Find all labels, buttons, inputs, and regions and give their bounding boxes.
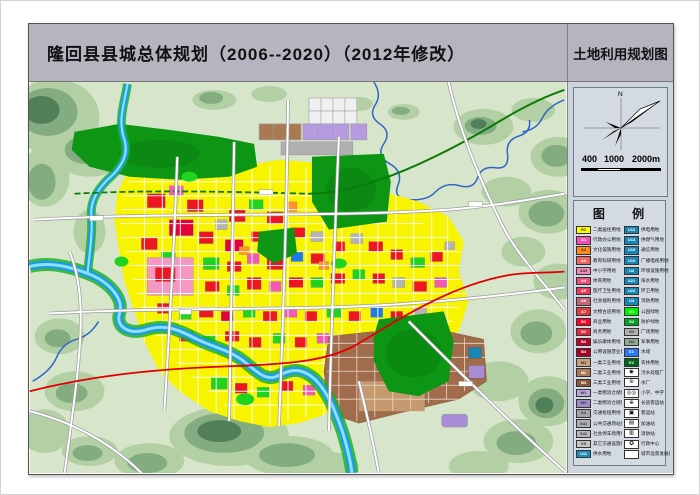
- legend-label: 体育用地: [593, 278, 611, 284]
- legend-label: 行政中心: [641, 441, 659, 447]
- school-icon: ◎◎: [624, 389, 639, 398]
- legend-item: G3广场用地: [624, 327, 670, 337]
- legend-label: 一类物流仓储用地: [593, 390, 622, 396]
- legend-item: B3娱乐康体用地: [576, 337, 622, 347]
- map-sheet-frame: 隆回县县城总体规划（2006--2020）（2012年修改） 土地利用规划图: [28, 23, 674, 475]
- legend-swatch: G1: [624, 307, 639, 316]
- legend-swatch: E1: [624, 348, 639, 357]
- legend-label: 供水用地: [593, 451, 611, 457]
- legend-item: R2二类居住用地: [576, 225, 622, 235]
- legend-label: 客运站: [641, 410, 655, 416]
- legend-item: M3三类工业用地: [576, 378, 622, 388]
- legend-label: 一类工业用地: [593, 360, 621, 366]
- passenger-station-icon: ▣: [624, 409, 639, 418]
- legend-label: 公用设施营业网点用地: [593, 349, 622, 355]
- legend-label: 三类工业用地: [593, 380, 621, 386]
- legend-swatch: B4: [576, 348, 591, 357]
- legend-item: M2二类工业用地: [576, 368, 622, 378]
- legend-label: 其它交通设施用地: [593, 441, 622, 447]
- legend-label: 污水处理厂: [641, 370, 664, 376]
- legend-swatch: W1: [576, 389, 591, 398]
- gas-station-icon: ▤: [624, 419, 639, 428]
- legend-label: 公园绿地: [641, 309, 659, 315]
- legend-label: 环境设施用地: [641, 268, 669, 274]
- legend-swatch: S41: [576, 419, 591, 428]
- scale-label-2000m: 2000m: [632, 154, 660, 164]
- legend-swatch: M3: [576, 379, 591, 388]
- legend-label: 社会停车场用地: [593, 431, 622, 437]
- legend-swatch: E2: [624, 358, 639, 367]
- title-bar: 隆回县县城总体规划（2006--2020）（2012年修改） 土地利用规划图: [29, 24, 673, 82]
- legend-item: M1一类工业用地: [576, 357, 622, 367]
- scanned-plan-page: 隆回县县城总体规划（2006--2020）（2012年修改） 土地利用规划图: [0, 0, 700, 495]
- scale-segment-2: [597, 168, 621, 171]
- legend-item: ⊛水厂: [624, 378, 670, 388]
- legend-label: 广播电视用地: [641, 258, 669, 264]
- legend-item: H4军事用地: [624, 337, 670, 347]
- legend-swatch: A3: [576, 256, 591, 265]
- legend-label: 文物古迹用地: [593, 309, 621, 315]
- legend-label: 消防用地: [641, 298, 659, 304]
- legend-item: E2农林用地: [624, 357, 670, 367]
- legend-label: 军事用地: [641, 339, 659, 345]
- legend-item: G2防护绿地: [624, 317, 670, 327]
- legend-label: 环卫用地: [641, 288, 659, 294]
- legend-item: U16广播电视用地: [624, 256, 670, 266]
- scale-bar: 400 1000 2000m: [574, 154, 667, 194]
- legend-label: 供电用地: [641, 227, 659, 233]
- legend-swatch: U11: [576, 450, 591, 459]
- legend-item: A6社会福利用地: [576, 296, 622, 306]
- legend-swatch: M2: [576, 368, 591, 377]
- legend-item: A3教育科研用地: [576, 256, 622, 266]
- legend-swatch-blank: [624, 450, 639, 459]
- legend-swatch: G3: [624, 328, 639, 337]
- legend-label: 娱乐康体用地: [593, 339, 621, 345]
- compass-scale-box: N 400 1000 2000m: [573, 87, 668, 197]
- legend-label: 文化设施用地: [593, 247, 621, 253]
- legend-item: U21排水用地: [624, 276, 670, 286]
- legend-item: ◉污水处理厂: [624, 368, 670, 378]
- legend-item: B2商务用地: [576, 327, 622, 337]
- legend-label: 消防站: [641, 431, 655, 437]
- legend-label: 农林用地: [641, 360, 659, 366]
- legend-item: A5医疗卫生用地: [576, 286, 622, 296]
- legend-item: A7文物古迹用地: [576, 307, 622, 317]
- legend-label: 商业用地: [593, 319, 611, 325]
- legend-swatch: U12: [624, 226, 639, 235]
- legend-swatch: A1: [576, 236, 591, 245]
- legend-label: 供燃气用地: [641, 237, 664, 243]
- map-canvas: [29, 82, 567, 473]
- legend-item: U12供电用地: [624, 225, 670, 235]
- scale-segment-1: [581, 168, 597, 171]
- legend-swatch: R2: [576, 226, 591, 235]
- sewage-plant-icon: ◉: [624, 368, 639, 377]
- map-type-title: 土地利用规划图: [568, 43, 673, 63]
- legend-item: U13供燃气用地: [624, 235, 670, 245]
- legend-item: ✪行政中心: [624, 439, 670, 449]
- legend-label: 通信用地: [641, 247, 659, 253]
- legend-item: S9其它交通设施用地: [576, 439, 622, 449]
- legend-item: B1商业用地: [576, 317, 622, 327]
- legend-swatch: W2: [576, 399, 591, 408]
- legend-title: 图 例: [586, 205, 663, 222]
- legend-label: 长途客运站: [641, 400, 664, 406]
- legend-label: 二类居住用地: [593, 227, 621, 233]
- scale-label-1000: 1000: [604, 154, 624, 164]
- legend-swatch: G2: [624, 318, 639, 327]
- legend-swatch: U13: [624, 236, 639, 245]
- legend-label: 二类物流仓储用地: [593, 400, 622, 406]
- legend-swatch: U22: [624, 287, 639, 296]
- legend-swatch: B1: [576, 318, 591, 327]
- legend-item: ⊕长途客运站: [624, 398, 670, 408]
- scale-segment-3: [621, 168, 661, 171]
- legend-item: ▤加油站: [624, 419, 670, 429]
- legend-item: U15通信用地: [624, 245, 670, 255]
- admin-center-icon: ✪: [624, 440, 639, 449]
- legend-label: 教育科研用地: [593, 258, 621, 264]
- legend-item: S41公共交通场站用地: [576, 419, 622, 429]
- main-title: 隆回县县城总体规划（2006--2020）（2012年修改）: [29, 40, 567, 65]
- coach-station-icon: ⊕: [624, 399, 639, 408]
- legend-swatch: A4: [576, 277, 591, 286]
- legend-item: G1公园绿地: [624, 307, 670, 317]
- legend-swatch: U2: [624, 267, 639, 276]
- water-plant-icon: ⊛: [624, 378, 639, 387]
- legend-label: 交通枢纽用地: [593, 410, 621, 416]
- map-sidebar: N 400 1000 2000m: [567, 82, 673, 473]
- legend-label: 中小学用地: [593, 268, 616, 274]
- legend-column-left: R2二类居住用地A1行政办公用地A2文化设施用地A3教育科研用地A33中小学用地…: [576, 225, 622, 459]
- legend-swatch: U3: [624, 297, 639, 306]
- land-use-map: [29, 82, 567, 473]
- legend-item: B4公用设施营业网点用地: [576, 347, 622, 357]
- scale-labels: 400 1000 2000m: [574, 154, 667, 167]
- compass-north-label: N: [618, 91, 623, 98]
- legend-label: 行政办公用地: [593, 237, 621, 243]
- legend-label: 加油站: [641, 421, 655, 427]
- legend-item: U11供水用地: [576, 449, 622, 459]
- legend-label: 排水用地: [641, 278, 659, 284]
- legend-item: W1一类物流仓储用地: [576, 388, 622, 398]
- legend-item: S42社会停车场用地: [576, 429, 622, 439]
- legend-item: A1行政办公用地: [576, 235, 622, 245]
- legend-swatch: U15: [624, 246, 639, 255]
- legend-swatch: S3: [576, 409, 591, 418]
- legend-item: A33中小学用地: [576, 266, 622, 276]
- legend-swatch: S42: [576, 430, 591, 439]
- legend-swatch: B2: [576, 328, 591, 337]
- legend-label: 医疗卫生用地: [593, 288, 621, 294]
- legend-label: 小学、中学: [641, 390, 664, 396]
- legend-swatch: B3: [576, 338, 591, 347]
- legend-item: E1水域: [624, 347, 670, 357]
- legend-column-right: U12供电用地U13供燃气用地U15通信用地U16广播电视用地U2环境设施用地U…: [624, 225, 670, 459]
- legend-item: A2文化设施用地: [576, 245, 622, 255]
- legend-swatch: A33: [576, 267, 591, 276]
- legend-box: 图 例 R2二类居住用地A1行政办公用地A2文化设施用地A3教育科研用地A33中…: [573, 200, 666, 466]
- legend-item: ▥消防站: [624, 429, 670, 439]
- legend-label: 广场用地: [641, 329, 659, 335]
- legend-item: U22环卫用地: [624, 286, 670, 296]
- legend-swatch: A7: [576, 307, 591, 316]
- legend-swatch: M1: [576, 358, 591, 367]
- fire-station-icon: ▥: [624, 429, 639, 438]
- legend-item: U3消防用地: [624, 296, 670, 306]
- scale-label-400: 400: [582, 154, 597, 164]
- legend-item: A4体育用地: [576, 276, 622, 286]
- legend-swatch: A2: [576, 246, 591, 255]
- legend-swatch: S9: [576, 440, 591, 449]
- legend-label: 商务用地: [593, 329, 611, 335]
- legend-item: U2环境设施用地: [624, 266, 670, 276]
- legend-swatch: A5: [576, 287, 591, 296]
- legend-item: ▣客运站: [624, 408, 670, 418]
- legend-label: 二类工业用地: [593, 370, 621, 376]
- legend-swatch: U16: [624, 256, 639, 265]
- legend-label: 公共交通场站用地: [593, 421, 622, 427]
- legend-swatch: A6: [576, 297, 591, 306]
- legend-swatch: H4: [624, 338, 639, 347]
- legend-label: 社会福利用地: [593, 298, 621, 304]
- legend-item: ◎◎小学、中学: [624, 388, 670, 398]
- legend-label: 水域: [641, 349, 650, 355]
- legend-label: 城市远景发展用地: [641, 451, 670, 457]
- legend-label: 水厂: [641, 380, 650, 386]
- legend-item: S3交通枢纽用地: [576, 408, 622, 418]
- legend-swatch: U21: [624, 277, 639, 286]
- legend-item: 城市远景发展用地: [624, 449, 670, 459]
- compass-rose: N: [574, 88, 667, 152]
- legend-label: 防护绿地: [641, 319, 659, 325]
- legend-item: W2二类物流仓储用地: [576, 398, 622, 408]
